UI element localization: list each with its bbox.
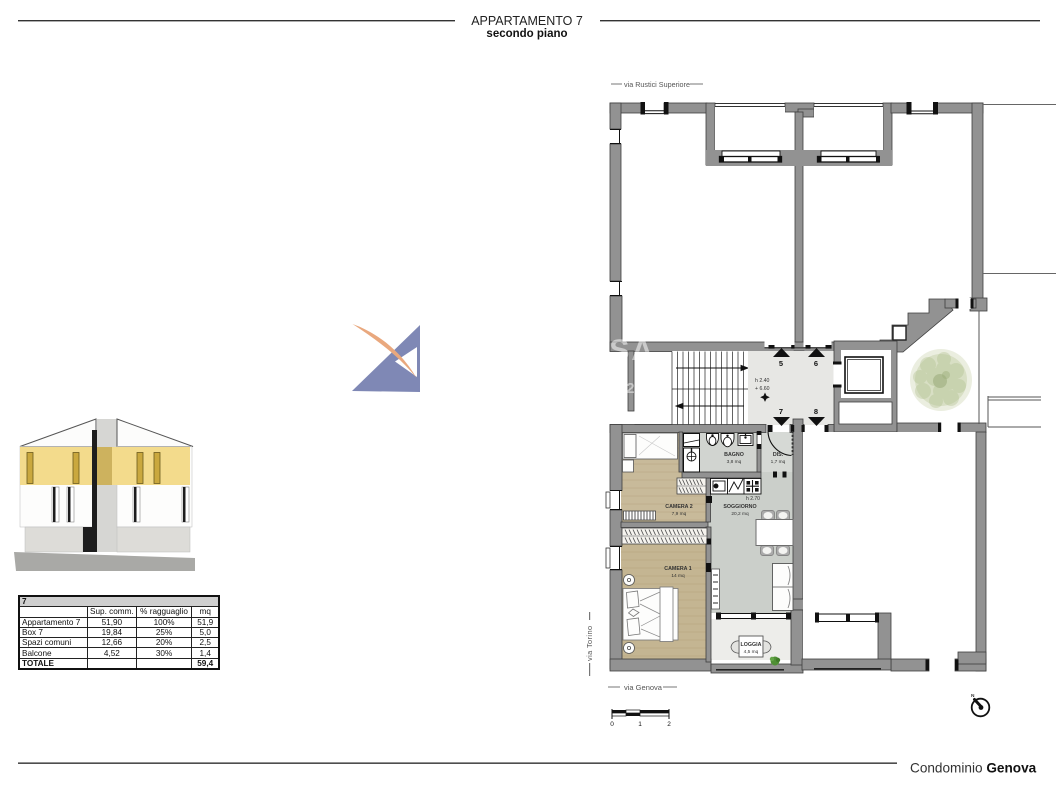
svg-text:0: 0 bbox=[610, 721, 614, 728]
svg-text:2023: 2023 bbox=[610, 380, 643, 397]
svg-text:7,9 mq: 7,9 mq bbox=[672, 511, 687, 517]
svg-text:3,8 mq: 3,8 mq bbox=[727, 459, 742, 465]
svg-text:h 2.70: h 2.70 bbox=[746, 496, 760, 502]
svg-text:SOGGIORNO: SOGGIORNO bbox=[723, 504, 756, 510]
svg-text:DIS.: DIS. bbox=[773, 452, 784, 458]
svg-text:2: 2 bbox=[667, 721, 671, 728]
svg-text:Condominio Genova: Condominio Genova bbox=[910, 761, 1037, 776]
svg-text:5: 5 bbox=[779, 359, 783, 368]
svg-text:via Genova: via Genova bbox=[624, 683, 663, 692]
svg-text:CAMERA 2: CAMERA 2 bbox=[665, 504, 693, 510]
svg-text:via Rustici Superiore: via Rustici Superiore bbox=[624, 80, 690, 89]
svg-text:20,2 mq: 20,2 mq bbox=[731, 511, 749, 517]
svg-text:4,5 mq: 4,5 mq bbox=[744, 649, 759, 655]
svg-text:secondo piano: secondo piano bbox=[486, 28, 567, 40]
svg-text:6: 6 bbox=[814, 359, 818, 368]
svg-text:7: 7 bbox=[779, 407, 783, 416]
svg-text:N: N bbox=[971, 693, 975, 699]
svg-text:1,7 mq: 1,7 mq bbox=[771, 459, 786, 465]
svg-text:CAMERA 1: CAMERA 1 bbox=[664, 566, 692, 572]
svg-text:h 2.40: h 2.40 bbox=[755, 378, 770, 384]
svg-text:via Torino: via Torino bbox=[585, 626, 594, 662]
svg-text:+ 6.60: + 6.60 bbox=[755, 386, 770, 392]
svg-text:14 mq: 14 mq bbox=[671, 573, 685, 579]
svg-text:LOGGIA: LOGGIA bbox=[741, 642, 762, 648]
svg-text:1: 1 bbox=[638, 721, 642, 728]
svg-text:8: 8 bbox=[814, 407, 818, 416]
svg-text:BAGNO: BAGNO bbox=[724, 452, 744, 458]
svg-text:APPARTAMENTO 7: APPARTAMENTO 7 bbox=[471, 14, 583, 28]
svg-text:ESTIMACASA: ESTIMACASA bbox=[437, 334, 655, 367]
